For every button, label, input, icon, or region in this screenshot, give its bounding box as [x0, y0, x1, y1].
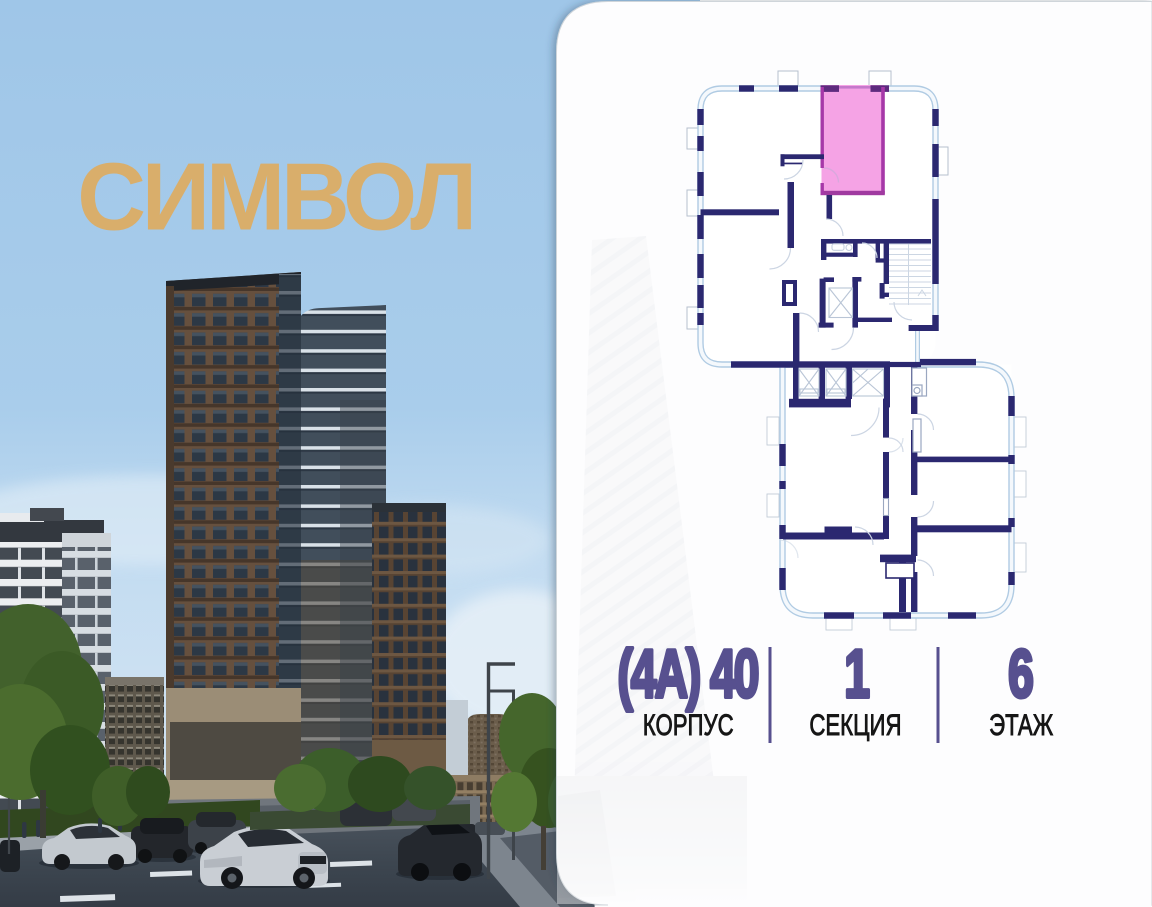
svg-text:6: 6	[1008, 636, 1033, 712]
svg-text:СИМВОЛ: СИМВОЛ	[77, 145, 473, 251]
svg-text:КОРПУС: КОРПУС	[643, 708, 734, 742]
svg-text:СЕКЦИЯ: СЕКЦИЯ	[809, 708, 901, 742]
svg-text:ЭТАЖ: ЭТАЖ	[989, 708, 1053, 742]
svg-text:1: 1	[844, 636, 869, 712]
svg-text:(4А) 40: (4А) 40	[618, 636, 758, 712]
